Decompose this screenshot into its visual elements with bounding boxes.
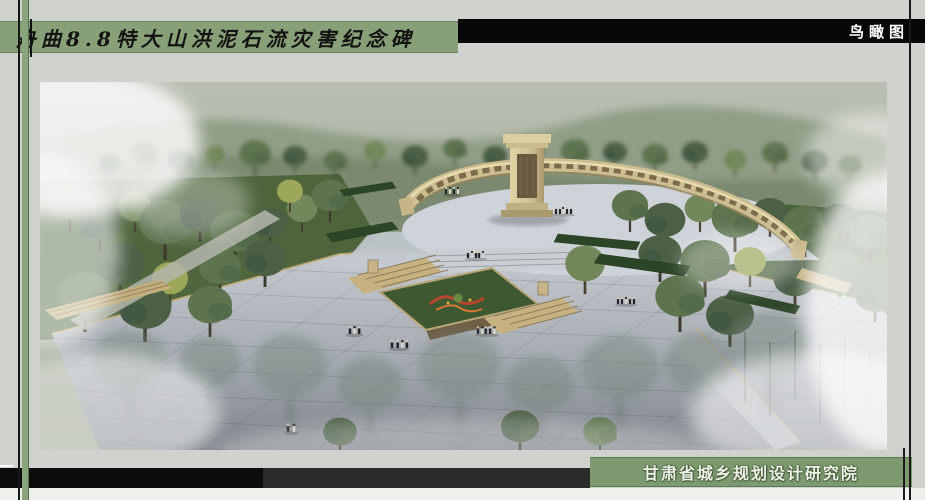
right-frame-line	[909, 0, 911, 500]
left-accent-stripe	[22, 0, 29, 500]
left-frame-line	[18, 0, 20, 500]
bottom-bar-black	[0, 468, 263, 488]
presentation-board: 舟曲8.8特大山洪泥石流灾害纪念碑 鸟瞰图	[0, 0, 925, 500]
title-banner: 舟曲8.8特大山洪泥石流灾害纪念碑	[0, 21, 458, 53]
rendering-scene	[40, 82, 887, 450]
board-title: 舟曲8.8特大山洪泥石流灾害纪念碑	[16, 23, 416, 52]
right-frame-line-2	[903, 448, 905, 500]
left-banner-tick	[30, 19, 32, 57]
institute-name: 甘肃省城乡规划设计研究院	[643, 460, 859, 484]
bottom-bar-dark	[263, 468, 590, 488]
site-rendering	[40, 82, 887, 450]
view-label: 鸟瞰图	[849, 21, 909, 42]
left-edge-notch	[0, 465, 13, 467]
bottom-white-strip	[0, 488, 925, 500]
view-label-bar: 鸟瞰图	[458, 19, 925, 43]
institute-banner: 甘肃省城乡规划设计研究院	[590, 457, 912, 487]
